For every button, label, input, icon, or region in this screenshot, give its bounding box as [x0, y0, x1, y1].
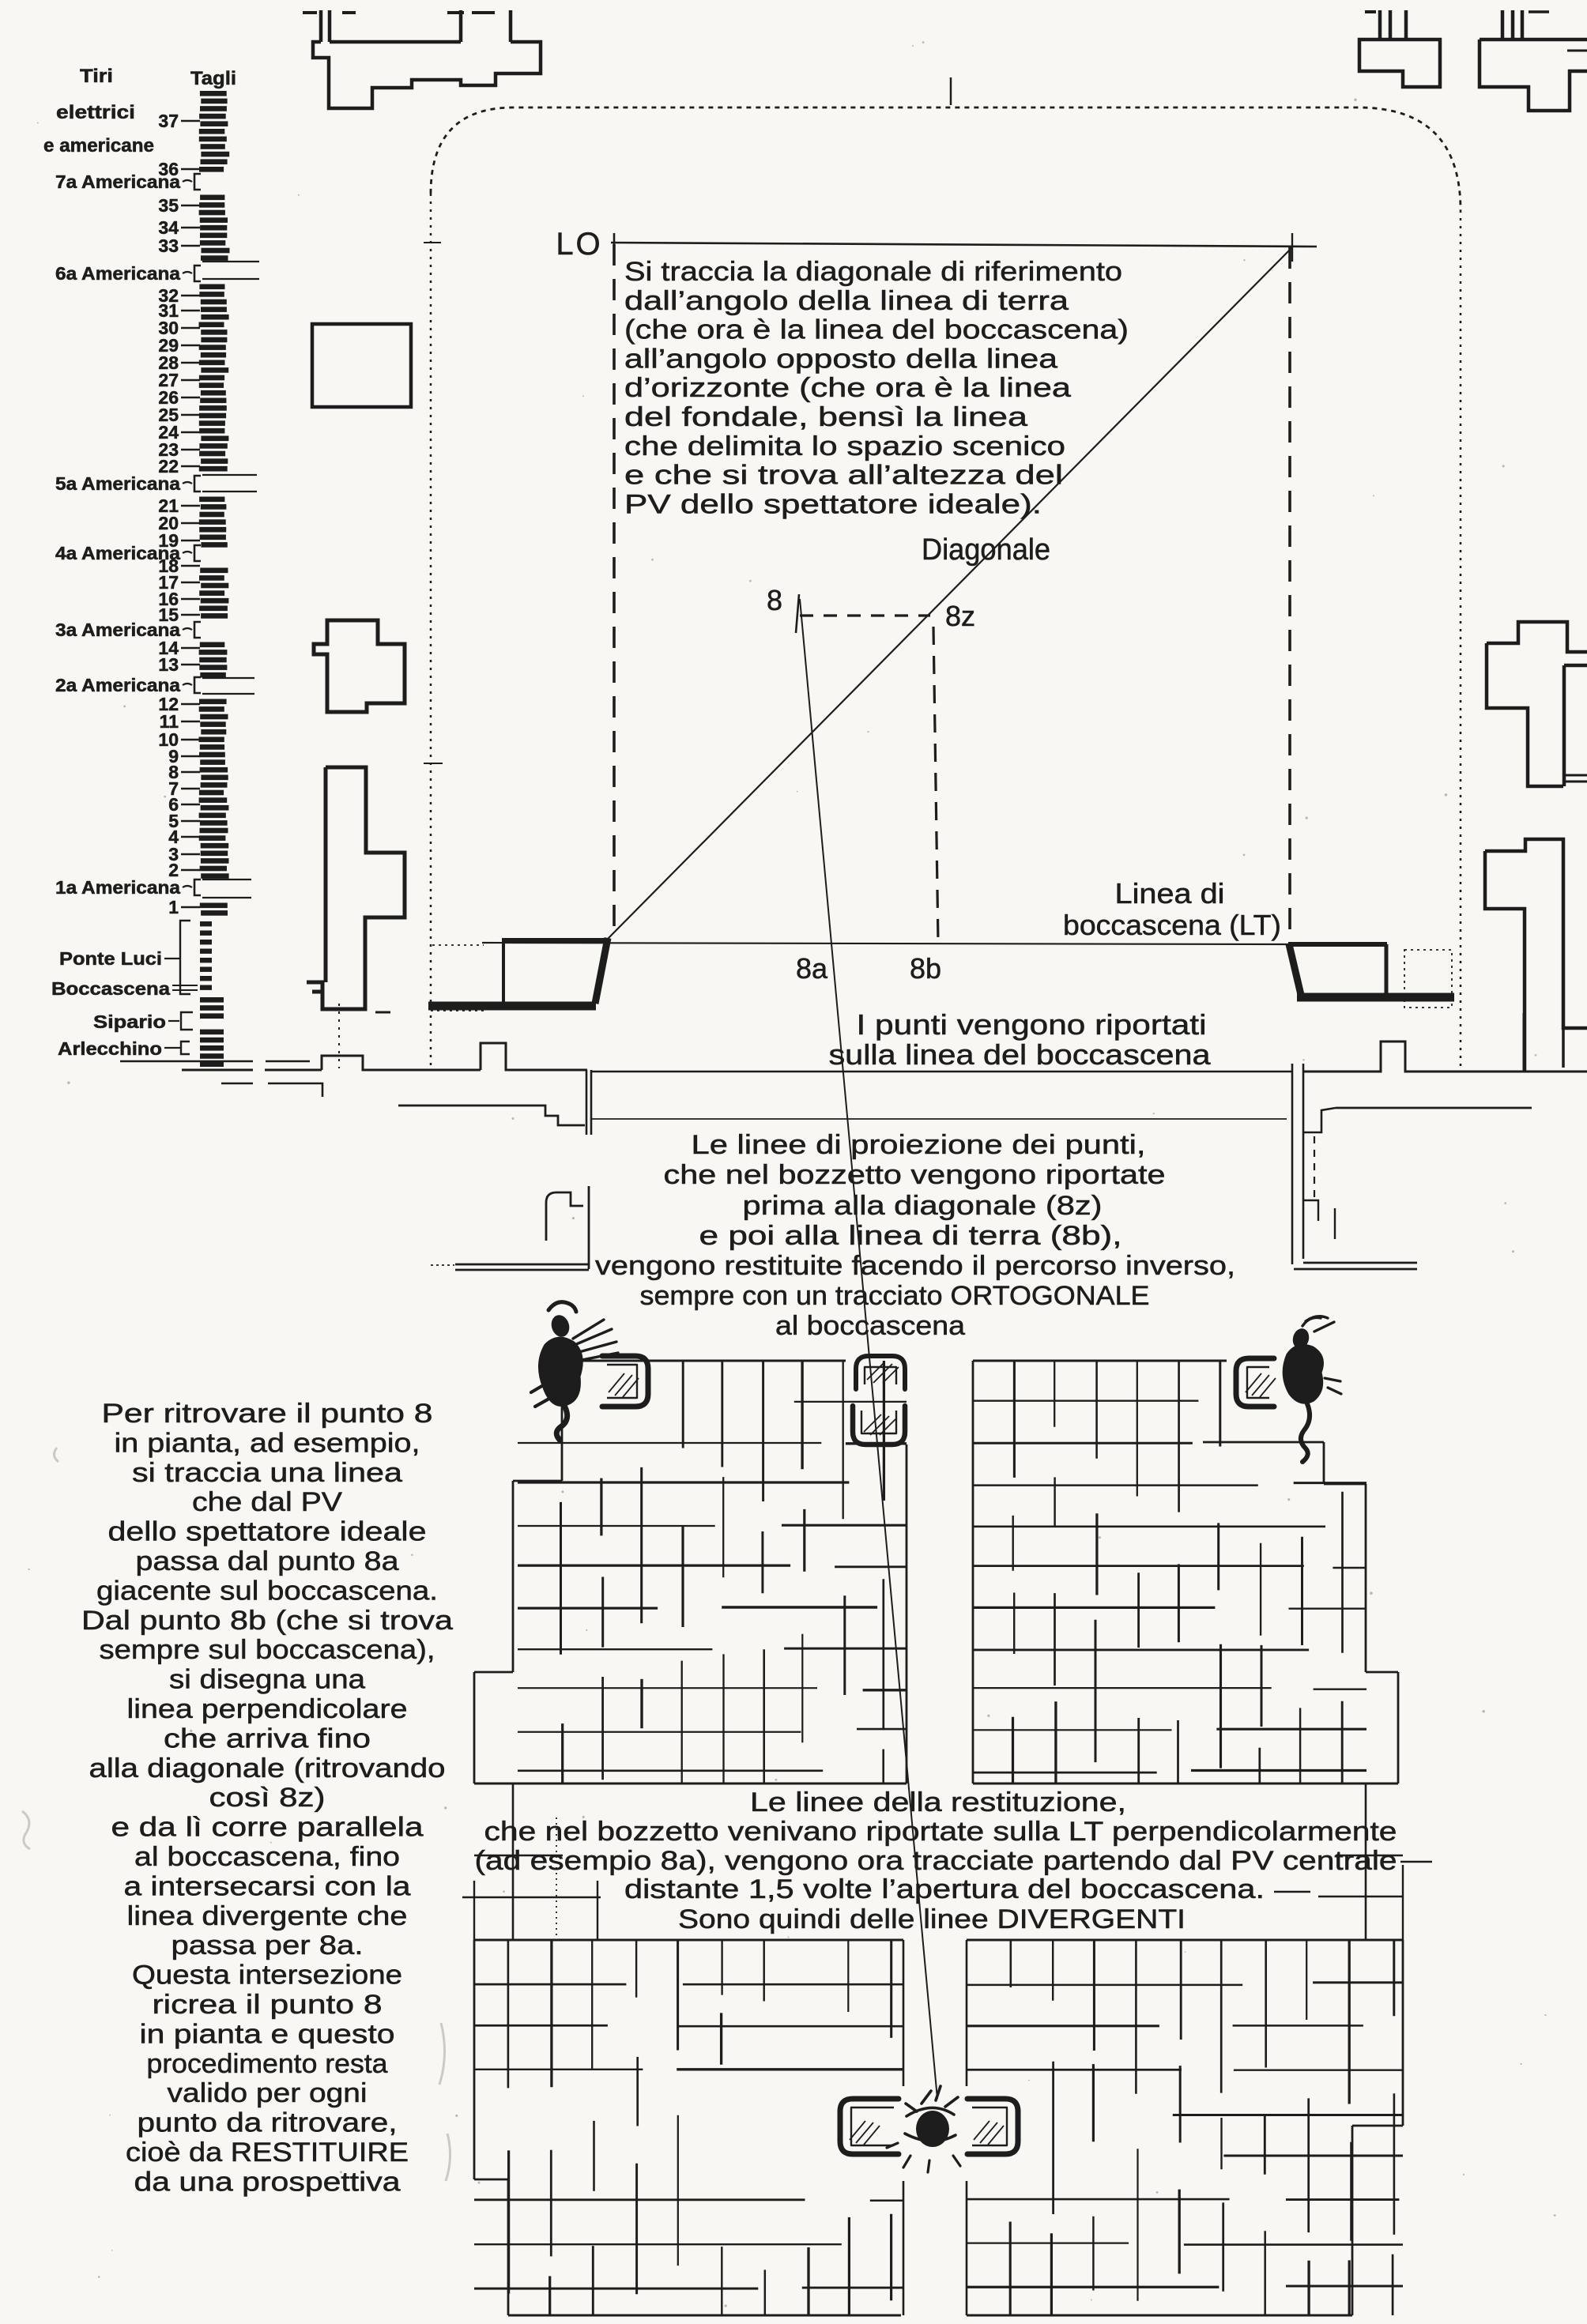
- svg-text:Sono quindi delle linee DIVERG: Sono quindi delle linee DIVERGENTI: [678, 1904, 1186, 1934]
- svg-text:33: 33: [158, 235, 179, 256]
- svg-text:2a Americana: 2a Americana: [55, 675, 180, 695]
- svg-text:Sipario: Sipario: [93, 1011, 166, 1032]
- svg-text:6a Americana: 6a Americana: [55, 263, 180, 284]
- svg-text:13: 13: [158, 654, 179, 675]
- svg-text:sempre sul boccascena),: sempre sul boccascena),: [100, 1635, 435, 1665]
- svg-text:Tiri: Tiri: [80, 66, 113, 87]
- svg-text:che nel bozzetto venivano ripo: che nel bozzetto venivano riportate sull…: [484, 1817, 1397, 1847]
- svg-text:si disegna una: si disegna una: [169, 1665, 365, 1695]
- svg-text:ricrea il punto 8: ricrea il punto 8: [153, 1990, 383, 2020]
- svg-text:37: 37: [158, 111, 179, 131]
- svg-text:1a Americana: 1a Americana: [55, 877, 180, 898]
- svg-text:valido per ogni: valido per ogni: [168, 2078, 368, 2108]
- svg-text:prima alla diagonale (8z): prima alla diagonale (8z): [743, 1191, 1103, 1221]
- svg-text:8b: 8b: [910, 952, 941, 985]
- svg-text:che delimita lo spazio scenico: che delimita lo spazio scenico: [624, 431, 1065, 461]
- svg-text:distante 1,5 volte l’apertura: distante 1,5 volte l’apertura del boccas…: [624, 1874, 1265, 1904]
- svg-text:Le linee di proiezione dei pun: Le linee di proiezione dei punti,: [692, 1130, 1146, 1160]
- svg-text:dall’angolo della linea di ter: dall’angolo della linea di terra: [624, 286, 1069, 316]
- svg-text:del fondale, bensì la linea: del fondale, bensì la linea: [624, 402, 1027, 432]
- svg-text:sempre con un tracciato ORTOGO: sempre con un tracciato ORTOGONALE: [640, 1281, 1150, 1311]
- svg-text:8: 8: [767, 584, 782, 616]
- svg-text:linea perpendicolare: linea perpendicolare: [127, 1694, 408, 1724]
- svg-text:in pianta e questo: in pianta e questo: [140, 2019, 395, 2049]
- svg-text:procedimento resta: procedimento resta: [147, 2049, 388, 2079]
- svg-text:a intersecarsi con la: a intersecarsi con la: [124, 1871, 411, 1901]
- svg-text:Si traccia la diagonale di rif: Si traccia la diagonale di riferimento: [624, 257, 1122, 287]
- svg-text:8a: 8a: [796, 952, 828, 985]
- svg-text:35: 35: [158, 195, 179, 216]
- svg-text:vengono restituite facendo il: vengono restituite facendo il percorso i…: [595, 1251, 1235, 1281]
- svg-text:e che si trova all’altezza del: e che si trova all’altezza del: [624, 461, 1063, 491]
- svg-text:cioè da RESTITUIRE: cioè da RESTITUIRE: [126, 2138, 409, 2168]
- svg-text:4a Americana: 4a Americana: [55, 543, 180, 563]
- svg-text:5a Americana: 5a Americana: [55, 473, 180, 494]
- svg-text:linea divergente che: linea divergente che: [127, 1901, 408, 1931]
- svg-text:Boccascena: Boccascena: [51, 978, 170, 999]
- svg-text:e americane: e americane: [43, 135, 154, 156]
- svg-text:in pianta, ad esempio,: in pianta, ad esempio,: [115, 1428, 420, 1458]
- svg-text:passa per 8a.: passa per 8a.: [172, 1930, 364, 1961]
- svg-text:alla diagonale (ritrovando: alla diagonale (ritrovando: [89, 1753, 446, 1783]
- svg-text:da una prospettiva: da una prospettiva: [134, 2167, 401, 2197]
- svg-text:al boccascena, fino: al boccascena, fino: [134, 1842, 400, 1872]
- svg-text:all’angolo opposto della linea: all’angolo opposto della linea: [624, 344, 1057, 374]
- svg-text:Ponte Luci: Ponte Luci: [59, 948, 162, 969]
- svg-text:LO: LO: [556, 227, 602, 262]
- svg-text:dello spettatore ideale: dello spettatore ideale: [108, 1517, 427, 1547]
- svg-text:Arlecchino: Arlecchino: [58, 1038, 162, 1059]
- svg-text:Questa intersezione: Questa intersezione: [132, 1961, 402, 1991]
- svg-text:che arriva fino: che arriva fino: [164, 1723, 371, 1753]
- svg-text:e poi alla linea di terra (8b): e poi alla linea di terra (8b),: [699, 1221, 1122, 1251]
- svg-text:al boccascena: al boccascena: [775, 1311, 965, 1341]
- svg-text:PV dello spettatore ideale).: PV dello spettatore ideale).: [624, 489, 1042, 519]
- svg-text:giacente sul boccascena.: giacente sul boccascena.: [96, 1576, 438, 1606]
- svg-text:Dal punto 8b (che si trova: Dal punto 8b (che si trova: [81, 1606, 453, 1636]
- svg-text:elettrici: elettrici: [56, 102, 135, 123]
- svg-text:(ad esempio 8a), vengono ora t: (ad esempio 8a), vengono ora tracciate p…: [475, 1846, 1397, 1876]
- svg-text:Linea di: Linea di: [1115, 877, 1225, 910]
- svg-text:Tagli: Tagli: [190, 68, 236, 89]
- svg-text:punto da ritrovare,: punto da ritrovare,: [138, 2108, 398, 2138]
- svg-text:1: 1: [168, 897, 179, 917]
- svg-text:che nel bozzetto vengono ripor: che nel bozzetto vengono riportate: [664, 1160, 1166, 1190]
- svg-text:passa dal punto 8a: passa dal punto 8a: [136, 1546, 399, 1576]
- svg-text:Per ritrovare il punto 8: Per ritrovare il punto 8: [102, 1399, 433, 1429]
- svg-text:Le linee della restituzione,: Le linee della restituzione,: [750, 1787, 1126, 1817]
- svg-text:(che ora è la linea del boccas: (che ora è la linea del boccascena): [624, 315, 1129, 345]
- svg-text:boccascena (LT): boccascena (LT): [1063, 909, 1281, 941]
- svg-text:così 8z): così 8z): [209, 1783, 326, 1813]
- svg-text:I punti vengono riportati: I punti vengono riportati: [857, 1008, 1207, 1041]
- svg-text:8z: 8z: [945, 600, 975, 632]
- svg-text:sulla linea del boccascena: sulla linea del boccascena: [829, 1038, 1212, 1071]
- svg-text:3a Americana: 3a Americana: [55, 620, 180, 640]
- svg-text:si traccia una linea: si traccia una linea: [132, 1458, 402, 1488]
- svg-text:che dal PV: che dal PV: [192, 1487, 342, 1517]
- svg-text:7a Americana: 7a Americana: [55, 171, 180, 192]
- svg-text:e da lì corre parallela: e da lì corre parallela: [111, 1813, 424, 1843]
- svg-text:Diagonale: Diagonale: [922, 533, 1050, 567]
- svg-text:d’orizzonte (che ora è la line: d’orizzonte (che ora è la linea: [624, 373, 1071, 403]
